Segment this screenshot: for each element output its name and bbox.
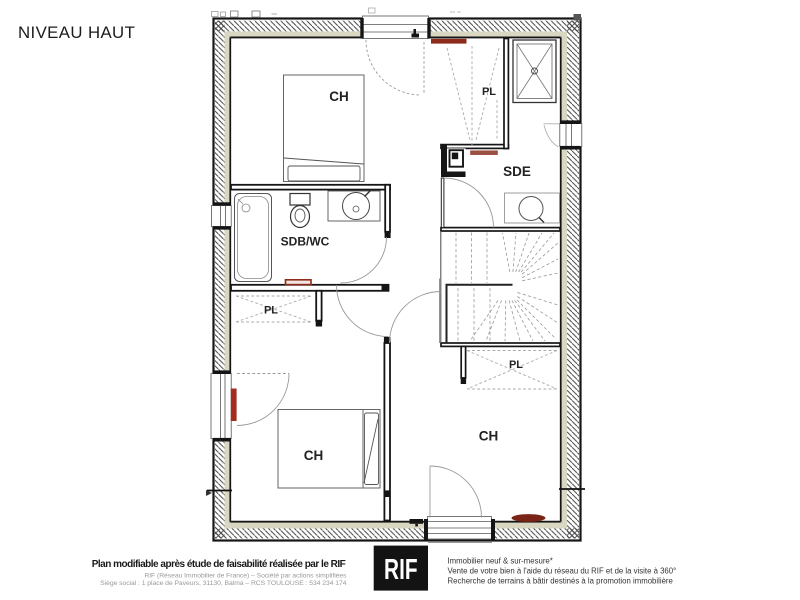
svg-text:SDE: SDE <box>503 164 531 179</box>
svg-text:NIVEAU HAUT: NIVEAU HAUT <box>18 23 135 42</box>
svg-text:RIF: RIF <box>384 554 418 586</box>
svg-text:Immobilier neuf & sur-mesure*: Immobilier neuf & sur-mesure* <box>448 556 553 565</box>
svg-text:PL: PL <box>264 305 278 317</box>
svg-text:Plan modifiable après étude de: Plan modifiable après étude de faisabili… <box>92 559 346 570</box>
svg-text:PL: PL <box>482 86 496 98</box>
svg-text:Recherche de terrains à bâtir: Recherche de terrains à bâtir destinés à… <box>448 576 673 585</box>
svg-text:SDB/WC: SDB/WC <box>281 235 330 249</box>
svg-text:CH: CH <box>304 448 324 463</box>
svg-text:PL: PL <box>509 359 523 371</box>
svg-text:Siège social : 1 place de Pave: Siège social : 1 place de Paveurs, 31130… <box>100 580 347 587</box>
svg-text:Vente de votre bien à l'aide d: Vente de votre bien à l'aide du réseau d… <box>448 566 677 575</box>
svg-text:CH: CH <box>479 429 499 444</box>
svg-text:CH: CH <box>329 89 349 104</box>
svg-text:RIF (Réseau Immobilier de Fran: RIF (Réseau Immobilier de France) – Soci… <box>144 572 347 579</box>
